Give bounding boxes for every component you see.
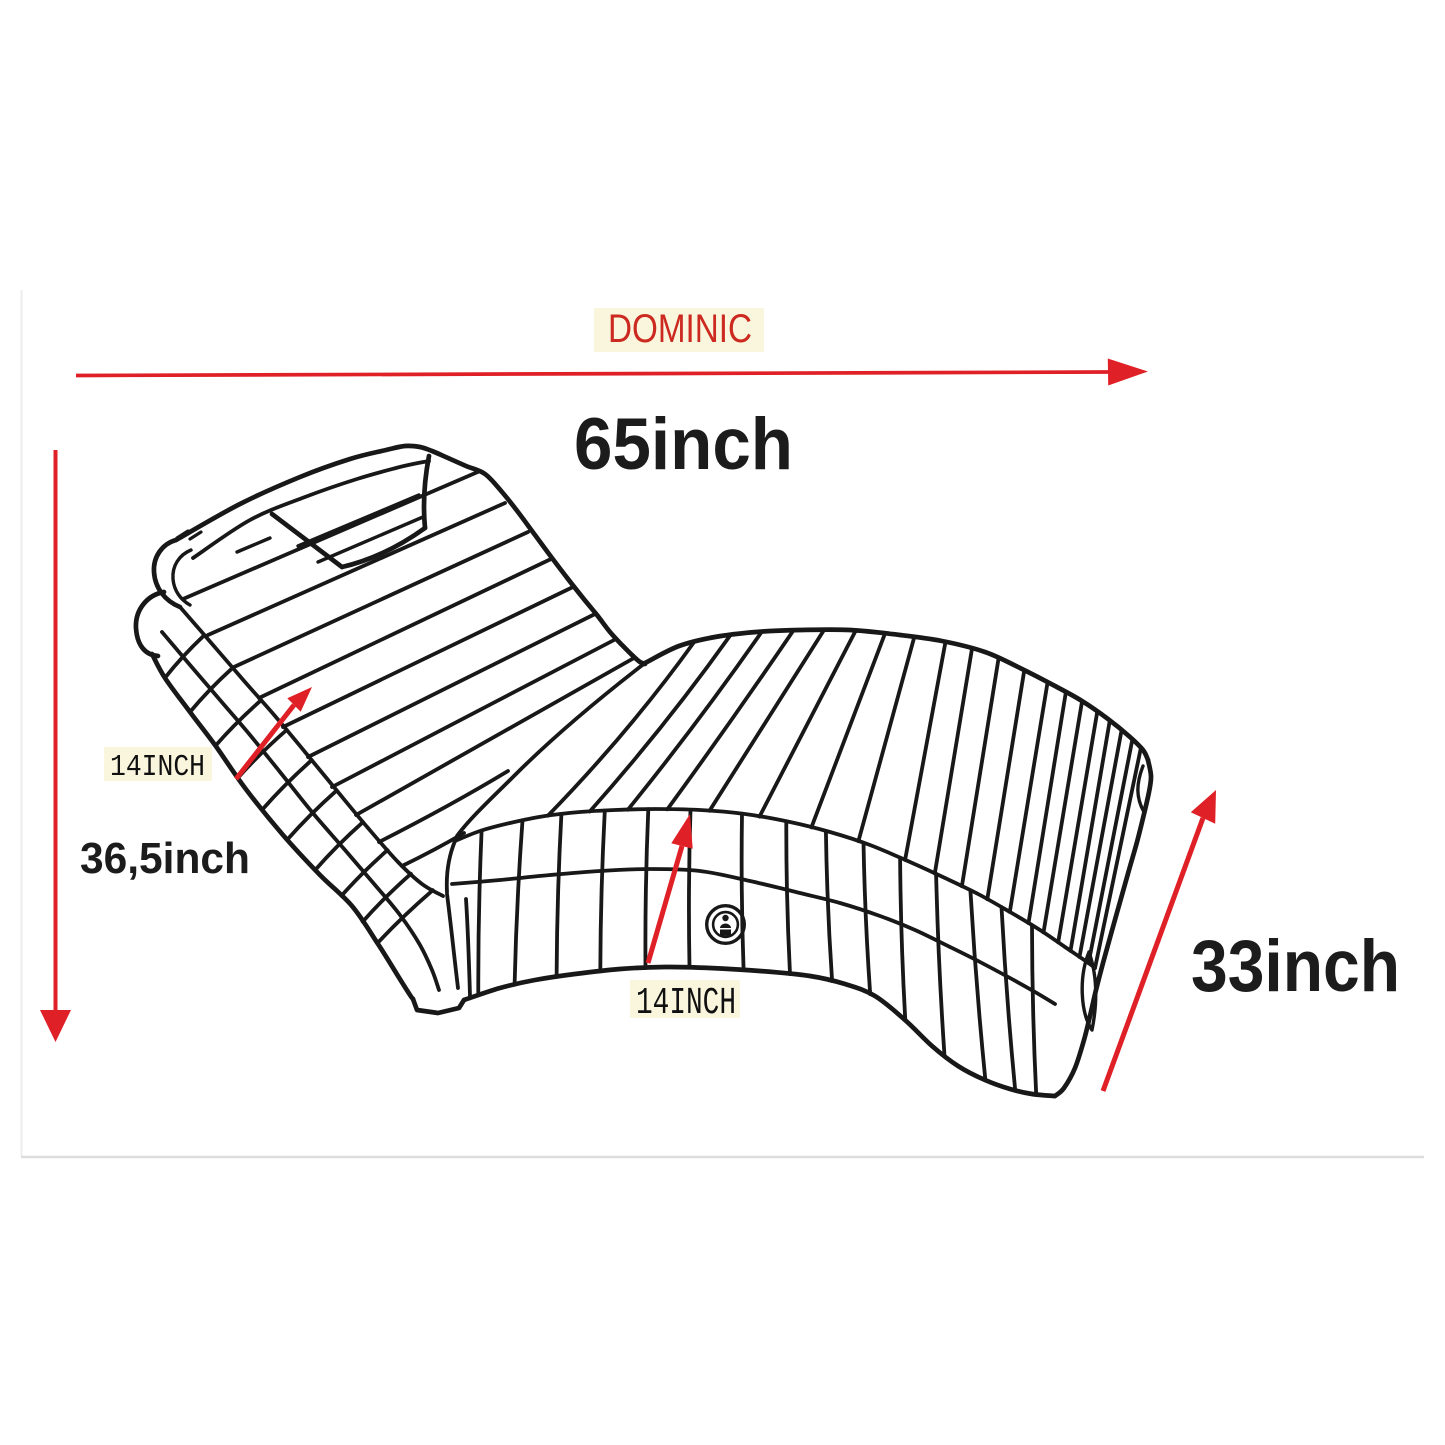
svg-text:65inch: 65inch [574, 404, 793, 485]
svg-text:DOMINIC: DOMINIC [608, 307, 752, 351]
svg-text:36,5inch: 36,5inch [80, 834, 250, 883]
svg-text:33inch: 33inch [1191, 926, 1400, 1007]
svg-text:14INCH: 14INCH [636, 982, 736, 1025]
svg-text:14INCH: 14INCH [110, 750, 205, 785]
